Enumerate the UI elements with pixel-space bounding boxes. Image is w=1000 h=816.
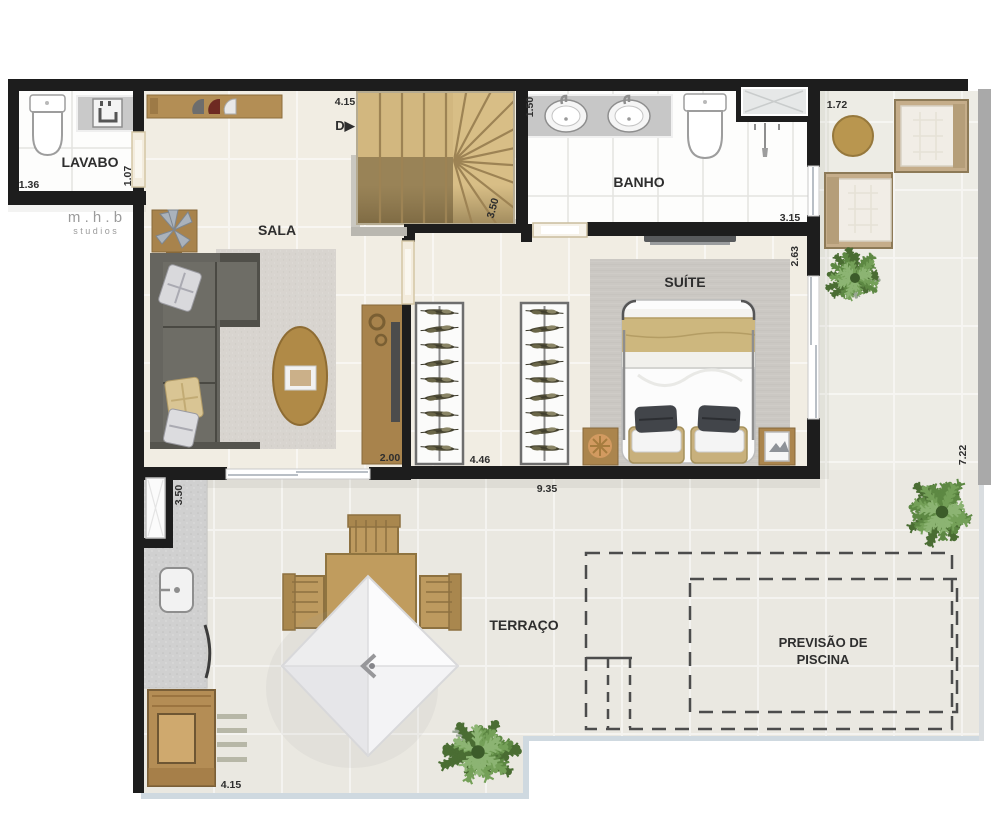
- svg-text:2.00: 2.00: [380, 452, 401, 464]
- svg-text:s t u d i o s: s t u d i o s: [73, 226, 117, 236]
- svg-text:1.36: 1.36: [19, 179, 40, 191]
- svg-text:TERRAÇO: TERRAÇO: [489, 617, 558, 633]
- svg-text:m . h . b: m . h . b: [68, 209, 122, 226]
- svg-text:4.15: 4.15: [221, 779, 242, 791]
- svg-text:SALA: SALA: [258, 222, 296, 238]
- svg-text:PISCINA: PISCINA: [797, 652, 850, 667]
- svg-text:4.15: 4.15: [335, 96, 356, 108]
- svg-text:D▶: D▶: [335, 118, 355, 133]
- svg-text:1.50: 1.50: [524, 97, 536, 118]
- svg-text:SUÍTE: SUÍTE: [664, 274, 705, 290]
- svg-text:7.22: 7.22: [957, 445, 969, 466]
- svg-text:LAVABO: LAVABO: [61, 154, 118, 170]
- svg-text:3.15: 3.15: [780, 212, 801, 224]
- svg-text:4.46: 4.46: [470, 454, 491, 466]
- svg-text:3.50: 3.50: [173, 485, 185, 506]
- svg-text:1.72: 1.72: [827, 99, 848, 111]
- svg-text:2.63: 2.63: [789, 246, 801, 267]
- svg-text:1.07: 1.07: [122, 166, 134, 187]
- svg-text:9.35: 9.35: [537, 483, 558, 495]
- svg-text:BANHO: BANHO: [613, 174, 664, 190]
- svg-text:PREVISÃO DE: PREVISÃO DE: [779, 635, 868, 650]
